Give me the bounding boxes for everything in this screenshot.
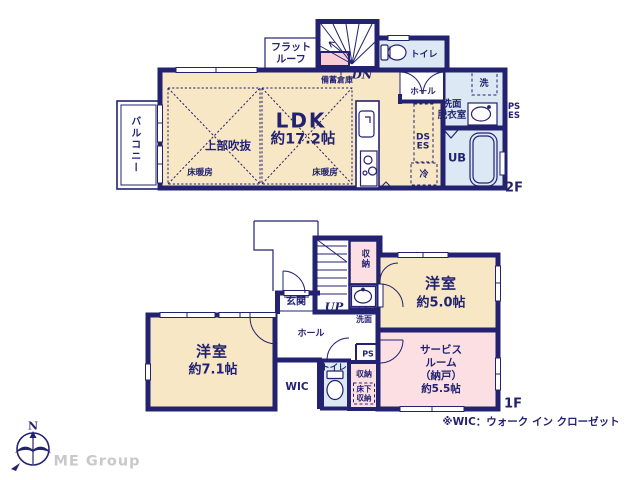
label-floor-1f: 1F <box>504 398 522 413</box>
label-stairs-down: DN <box>352 68 372 81</box>
label-storage-upper: 収納 <box>359 249 369 269</box>
label-bedroom-left-name: 洋室 <box>196 343 228 360</box>
entrance-porch-outline <box>254 221 318 291</box>
label-underfloor-storage: 床下 収納 <box>357 385 372 402</box>
compass-icon <box>11 431 51 471</box>
floorplan-graphic <box>0 0 640 480</box>
label-void: 上部吹抜 <box>205 139 251 152</box>
label-bedroom-right-size: 約5.0帖 <box>416 297 465 312</box>
label-bedroom-right-name: 洋室 <box>425 275 457 292</box>
label-fridge: 冷 <box>419 170 428 180</box>
wic-note: ※WIC：ウォーク イン クローゼット <box>442 416 619 428</box>
washbasin-icon-1f <box>352 287 376 307</box>
label-ps-es: PS ES <box>508 103 520 121</box>
toilet-icon-2f <box>381 45 406 60</box>
washbasin-icon-2f <box>468 103 497 125</box>
label-entrance: 玄関 <box>286 296 306 308</box>
label-hall-2f: ホール <box>410 88 436 98</box>
label-toilet-1f: トイレ <box>321 364 347 374</box>
label-ps: PS <box>362 349 374 358</box>
label-ldk-name: LDK <box>276 110 327 133</box>
label-ldk-size: 約17.2帖 <box>271 132 336 149</box>
label-unit-bath: UB <box>448 151 466 164</box>
label-stock-storage: 備蓄倉庫 <box>321 75 353 84</box>
label-washer: 洗 <box>479 79 488 89</box>
brand-logo-text: ME Group <box>53 454 140 471</box>
floorplan-page: バルコニー フラット ルーフ 備蓄倉庫 DN トイレ ホール LDK 約17.2… <box>0 0 640 480</box>
label-floor-2f: 2F <box>505 182 523 197</box>
label-ds-es: DS ES <box>416 134 430 153</box>
label-toilet-2f: トイレ <box>410 50 437 60</box>
compass-north-label: N <box>28 421 38 434</box>
label-bedroom-left-size: 約7.1帖 <box>188 364 237 379</box>
label-second-basin: セカンド 洗面 <box>348 306 380 324</box>
label-balcony: バルコニー <box>128 116 140 174</box>
label-storage-lower: 収納 <box>356 369 372 378</box>
label-stairs-up: UP <box>325 300 344 313</box>
toilet-icon-1f <box>327 371 343 400</box>
label-wic: WIC <box>285 381 308 393</box>
label-service-room: サービス ルーム （納戸） 約5.5帖 <box>420 344 462 397</box>
label-floor-heating-right: 床暖房 <box>312 169 338 179</box>
label-hall-1f: ホール <box>297 329 324 339</box>
label-flat-roof: フラット ルーフ <box>271 43 311 66</box>
label-floor-heating-left: 床暖房 <box>187 169 213 179</box>
label-washroom: 洗面 脱衣室 <box>438 100 467 122</box>
